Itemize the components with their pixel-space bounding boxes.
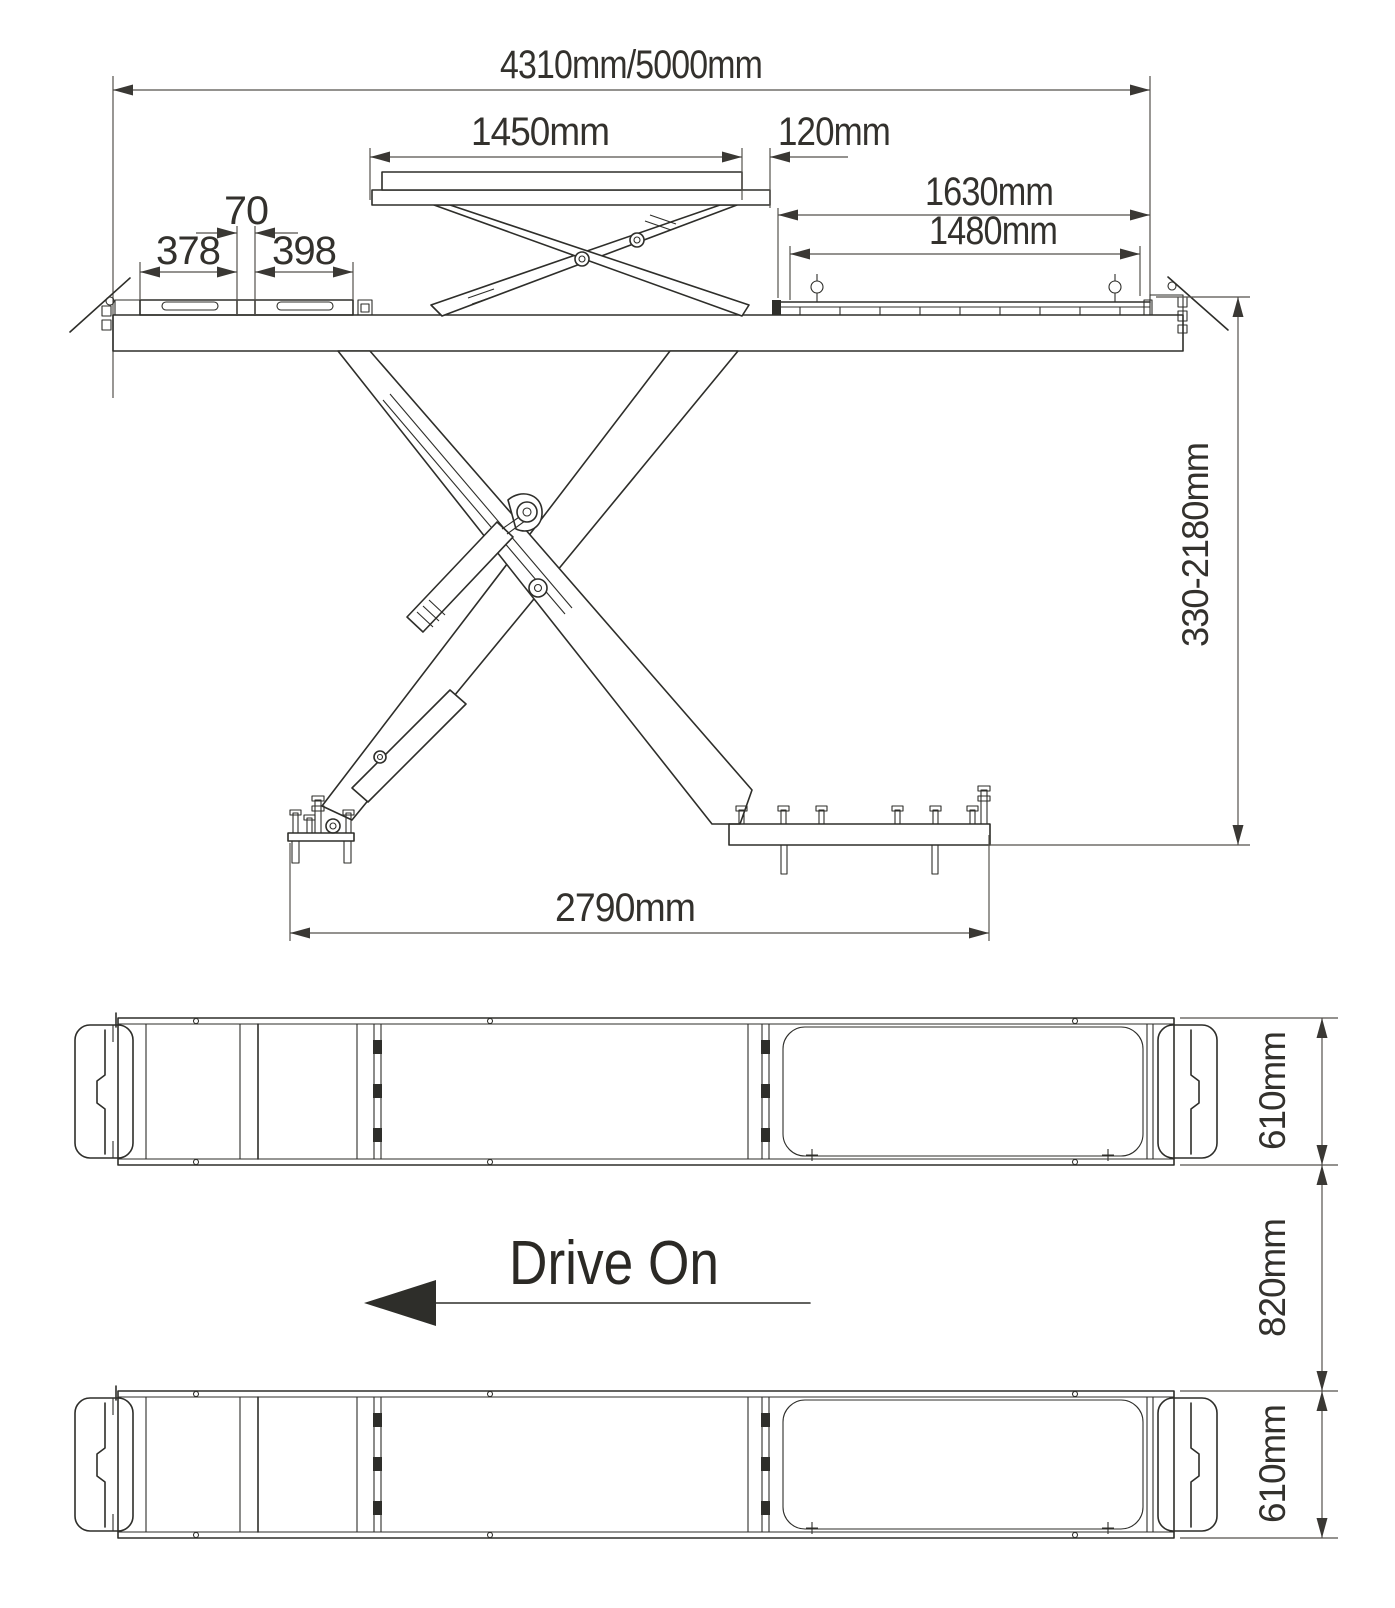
drive-on-annotation: Drive On <box>364 1229 810 1326</box>
extension-overall-label: 1630mm <box>925 170 1053 214</box>
scissor-roller <box>326 819 340 833</box>
jack-offset-dimension: 120mm <box>770 110 890 208</box>
runway-beam <box>113 315 1183 351</box>
plate-gap-label: 70 <box>224 189 268 233</box>
jack-offset-label: 120mm <box>778 110 890 154</box>
lift-height-label: 330-2180mm <box>1175 443 1216 647</box>
runway-gap-label: 820mm <box>1252 1219 1293 1337</box>
tray-eyebolt-left <box>811 274 823 302</box>
tray-eyebolt-right <box>1109 274 1121 302</box>
drive-on-label: Drive On <box>509 1229 719 1298</box>
scissor-center-pivot <box>529 579 547 597</box>
front-slotted-plates <box>115 300 372 315</box>
plate-left-label: 378 <box>156 229 220 273</box>
drive-on-arrow-head <box>364 1280 436 1326</box>
right-ramp-flap <box>1150 277 1228 333</box>
runway-width-rear-label: 610mm <box>1252 1405 1293 1523</box>
runway-plan-rear <box>75 1386 1217 1538</box>
runway-width-front-label: 610mm <box>1252 1032 1293 1150</box>
scissor-lift-technical-drawing: 4310mm/5000mm <box>0 0 1395 1608</box>
drawing-canvas: 4310mm/5000mm <box>0 0 1395 1608</box>
plate-right-label: 398 <box>272 229 336 273</box>
lift-height-dimension: 330-2180mm <box>1156 297 1250 845</box>
left-ramp-flap <box>70 278 130 332</box>
base-span-dimension: 2790mm <box>290 835 989 941</box>
overall-length-label: 4310mm/5000mm <box>500 43 762 87</box>
runway-width-dimensions: 610mm 820mm 610mm <box>1180 1018 1338 1538</box>
main-scissor-mechanism <box>322 351 752 833</box>
extension-tray <box>772 274 1152 315</box>
runway-plan-front <box>75 1013 1217 1165</box>
plan-views: Drive On 610mm 820mm 610mm <box>75 1013 1338 1538</box>
side-elevation-view: 4310mm/5000mm <box>70 43 1250 941</box>
plate-dimensions: 70 378 398 <box>140 189 353 315</box>
extension-inner-label: 1480mm <box>929 209 1057 253</box>
base-span-label: 2790mm <box>555 886 695 930</box>
tray-dimensions: 1630mm 1480mm <box>778 170 1150 300</box>
jack-length-label: 1450mm <box>471 110 609 154</box>
jack-platform <box>372 172 770 316</box>
anchor-bolts-right <box>736 786 990 874</box>
